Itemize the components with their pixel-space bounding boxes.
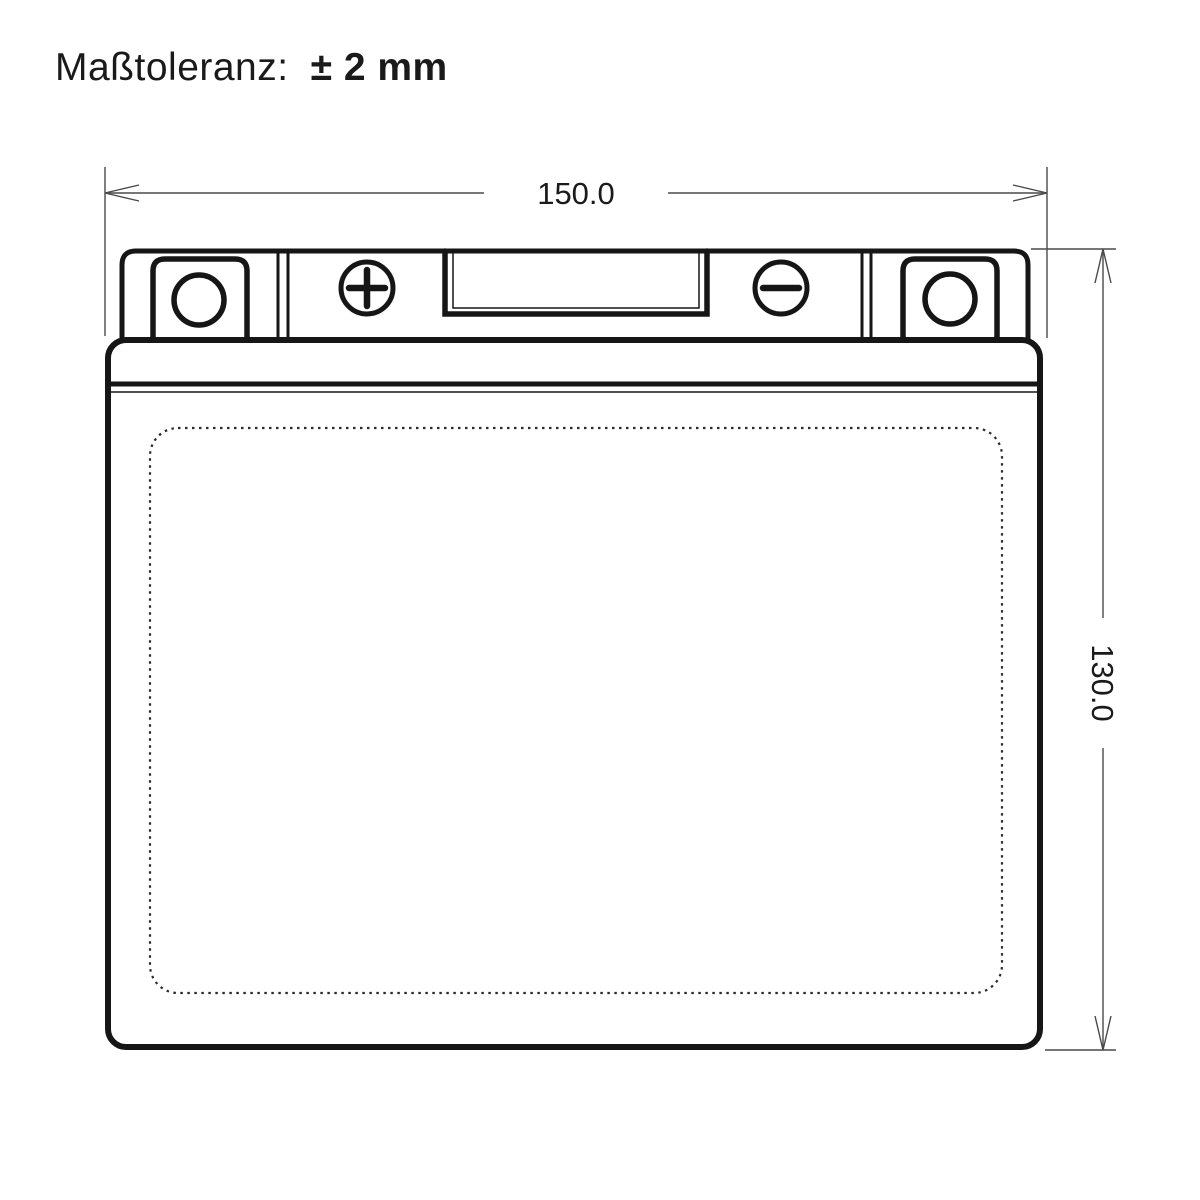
- height-dimension-label: 130.0: [1085, 644, 1120, 722]
- left-mounting-cap: [153, 259, 247, 340]
- battery-lid-outline: [122, 251, 1028, 341]
- battery-technical-drawing: 150.0 130.0: [0, 0, 1200, 1200]
- width-dimension-label: 150.0: [537, 176, 615, 211]
- right-mounting-cap: [903, 259, 997, 340]
- left-mounting-hole-icon: [174, 275, 224, 325]
- dimension-group: [105, 167, 1116, 1050]
- label-area-dashed-border: [150, 428, 1002, 993]
- battery-group: [108, 251, 1040, 1047]
- handle-recess-inner-line: [453, 253, 699, 308]
- diagram-canvas: Maßtoleranz:± 2 mm 150.0 130.0: [0, 0, 1200, 1200]
- negative-terminal: [755, 262, 807, 314]
- battery-body-outline: [108, 340, 1040, 1047]
- handle-recess: [445, 251, 707, 314]
- positive-terminal: [341, 262, 393, 314]
- plus-icon: [349, 270, 385, 306]
- right-mounting-hole-icon: [925, 274, 975, 324]
